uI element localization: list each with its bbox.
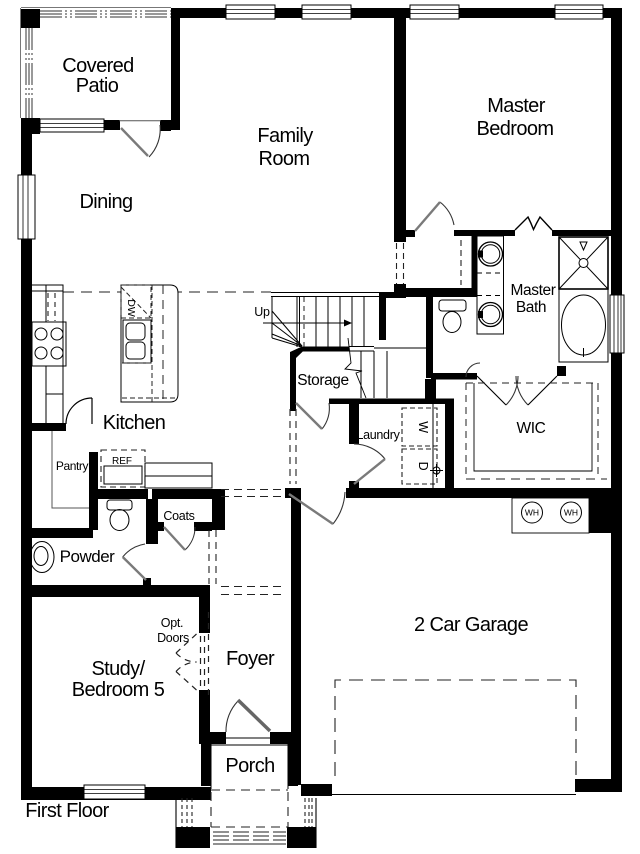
svg-text:Porch: Porch — [225, 755, 274, 777]
svg-text:Kitchen: Kitchen — [103, 412, 166, 434]
svg-text:Patio: Patio — [76, 75, 119, 97]
svg-text:Study/: Study/ — [91, 658, 145, 680]
svg-text:Master: Master — [487, 95, 545, 117]
svg-text:Powder: Powder — [60, 547, 115, 566]
svg-text:Opt.: Opt. — [161, 616, 183, 630]
svg-text:First Floor: First Floor — [25, 800, 109, 822]
svg-text:WH: WH — [564, 508, 578, 518]
svg-text:Doors: Doors — [157, 631, 189, 645]
svg-text:Bath: Bath — [516, 299, 546, 316]
svg-text:2 Car Garage: 2 Car Garage — [414, 614, 528, 636]
svg-text:W: W — [416, 421, 430, 433]
svg-text:DW: DW — [125, 299, 137, 317]
svg-text:WIC: WIC — [517, 420, 546, 437]
svg-text:D: D — [416, 462, 430, 471]
svg-text:Coats: Coats — [163, 509, 194, 523]
svg-text:Master: Master — [511, 282, 556, 299]
svg-text:Bedroom 5: Bedroom 5 — [72, 679, 165, 701]
svg-text:Room: Room — [259, 148, 310, 170]
svg-text:Foyer: Foyer — [226, 648, 275, 670]
svg-text:Bedroom: Bedroom — [477, 118, 554, 140]
svg-text:Family: Family — [257, 125, 313, 147]
svg-text:Up: Up — [254, 305, 270, 319]
svg-text:REF: REF — [112, 456, 132, 467]
svg-text:WH: WH — [525, 508, 539, 518]
svg-text:Laundry: Laundry — [356, 428, 400, 442]
svg-text:Covered: Covered — [62, 55, 133, 77]
svg-text:Dining: Dining — [79, 191, 132, 213]
svg-text:Storage: Storage — [297, 372, 349, 389]
svg-text:Pantry: Pantry — [56, 459, 89, 473]
